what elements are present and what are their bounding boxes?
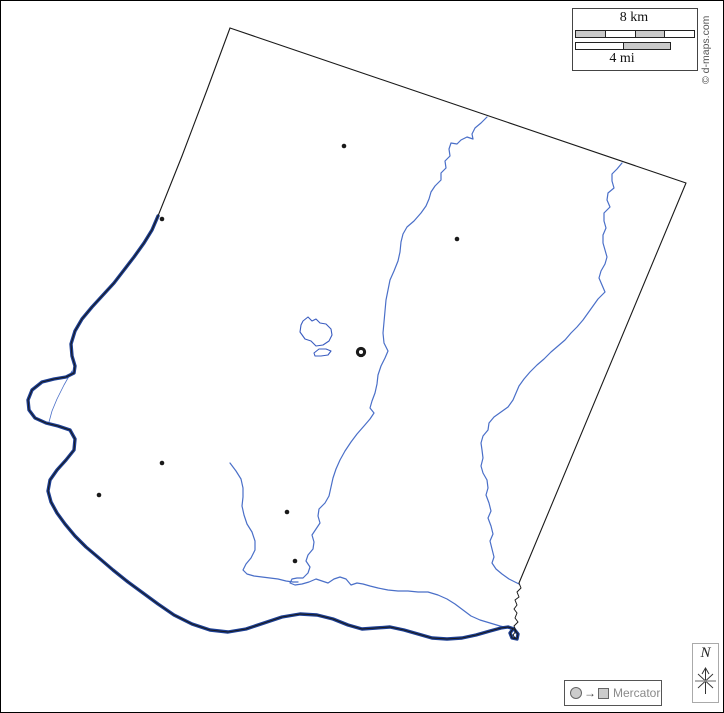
scale-segment [576, 31, 606, 37]
scale-segment [606, 31, 636, 37]
arrow-right-icon: → [584, 687, 596, 699]
compass-star-icon [694, 662, 717, 698]
city-dot [285, 510, 290, 515]
major-river-path [28, 216, 518, 639]
projection-legend: → Mercator [564, 680, 662, 706]
scale-segment [636, 31, 666, 37]
city-circle-icon [570, 687, 582, 699]
map-canvas [0, 0, 724, 713]
north-label: N [693, 645, 718, 662]
scale-mi-segments [575, 42, 671, 50]
county-border-line [158, 28, 230, 216]
scale-segment [624, 43, 671, 49]
scale-segment [665, 31, 694, 37]
city-dot [455, 237, 460, 242]
copyright-text: © d-maps.com [700, 8, 716, 84]
city-dot [160, 461, 165, 466]
compass-rose: N [692, 643, 719, 703]
city-dot [160, 217, 165, 222]
projection-label: Mercator [613, 686, 660, 700]
lake-shape [314, 349, 331, 356]
river-boundary-line [28, 216, 518, 639]
minor-river-path [230, 463, 298, 582]
scale-bar: 8 km 4 mi [572, 8, 698, 71]
square-marker-icon [598, 688, 609, 699]
lake-shape [300, 317, 332, 346]
city-dot [97, 493, 102, 498]
minor-river-path [481, 163, 622, 584]
city-dot [342, 144, 347, 149]
scale-mi-label: 4 mi [575, 51, 669, 67]
scale-km-label: 8 km [573, 10, 695, 26]
scale-segment [576, 43, 624, 49]
county-seat-marker [357, 348, 364, 355]
city-dot [293, 559, 298, 564]
map-page: 8 km 4 mi © d-maps.com N → Mercator [0, 0, 724, 713]
minor-river-path [290, 117, 508, 628]
scale-km-segments [575, 30, 695, 38]
county-border-line [230, 28, 686, 583]
